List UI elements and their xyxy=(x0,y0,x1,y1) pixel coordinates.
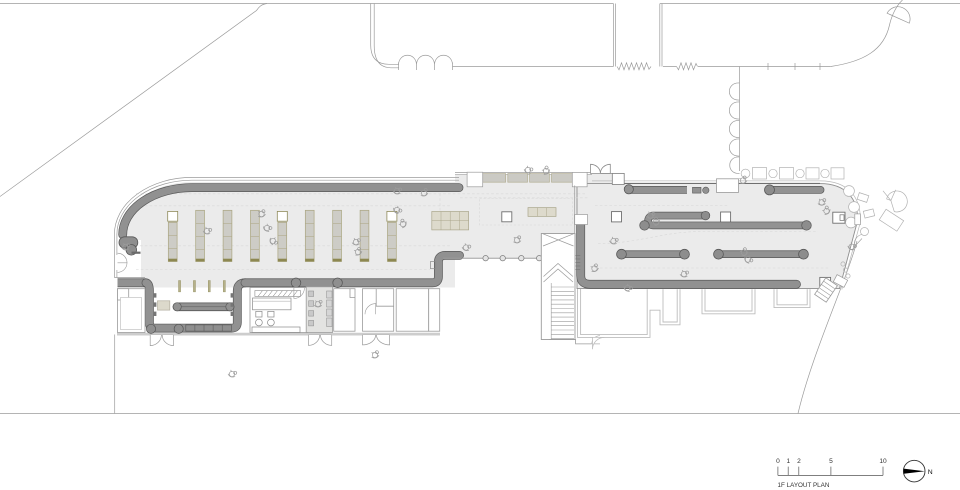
svg-text:2: 2 xyxy=(797,458,801,465)
svg-text:1: 1 xyxy=(786,458,790,465)
svg-text:N: N xyxy=(928,469,933,476)
svg-text:10: 10 xyxy=(879,458,887,465)
svg-text:0: 0 xyxy=(776,458,780,465)
svg-text:1F LAYOUT PLAN: 1F LAYOUT PLAN xyxy=(778,482,830,489)
svg-text:5: 5 xyxy=(829,458,833,465)
